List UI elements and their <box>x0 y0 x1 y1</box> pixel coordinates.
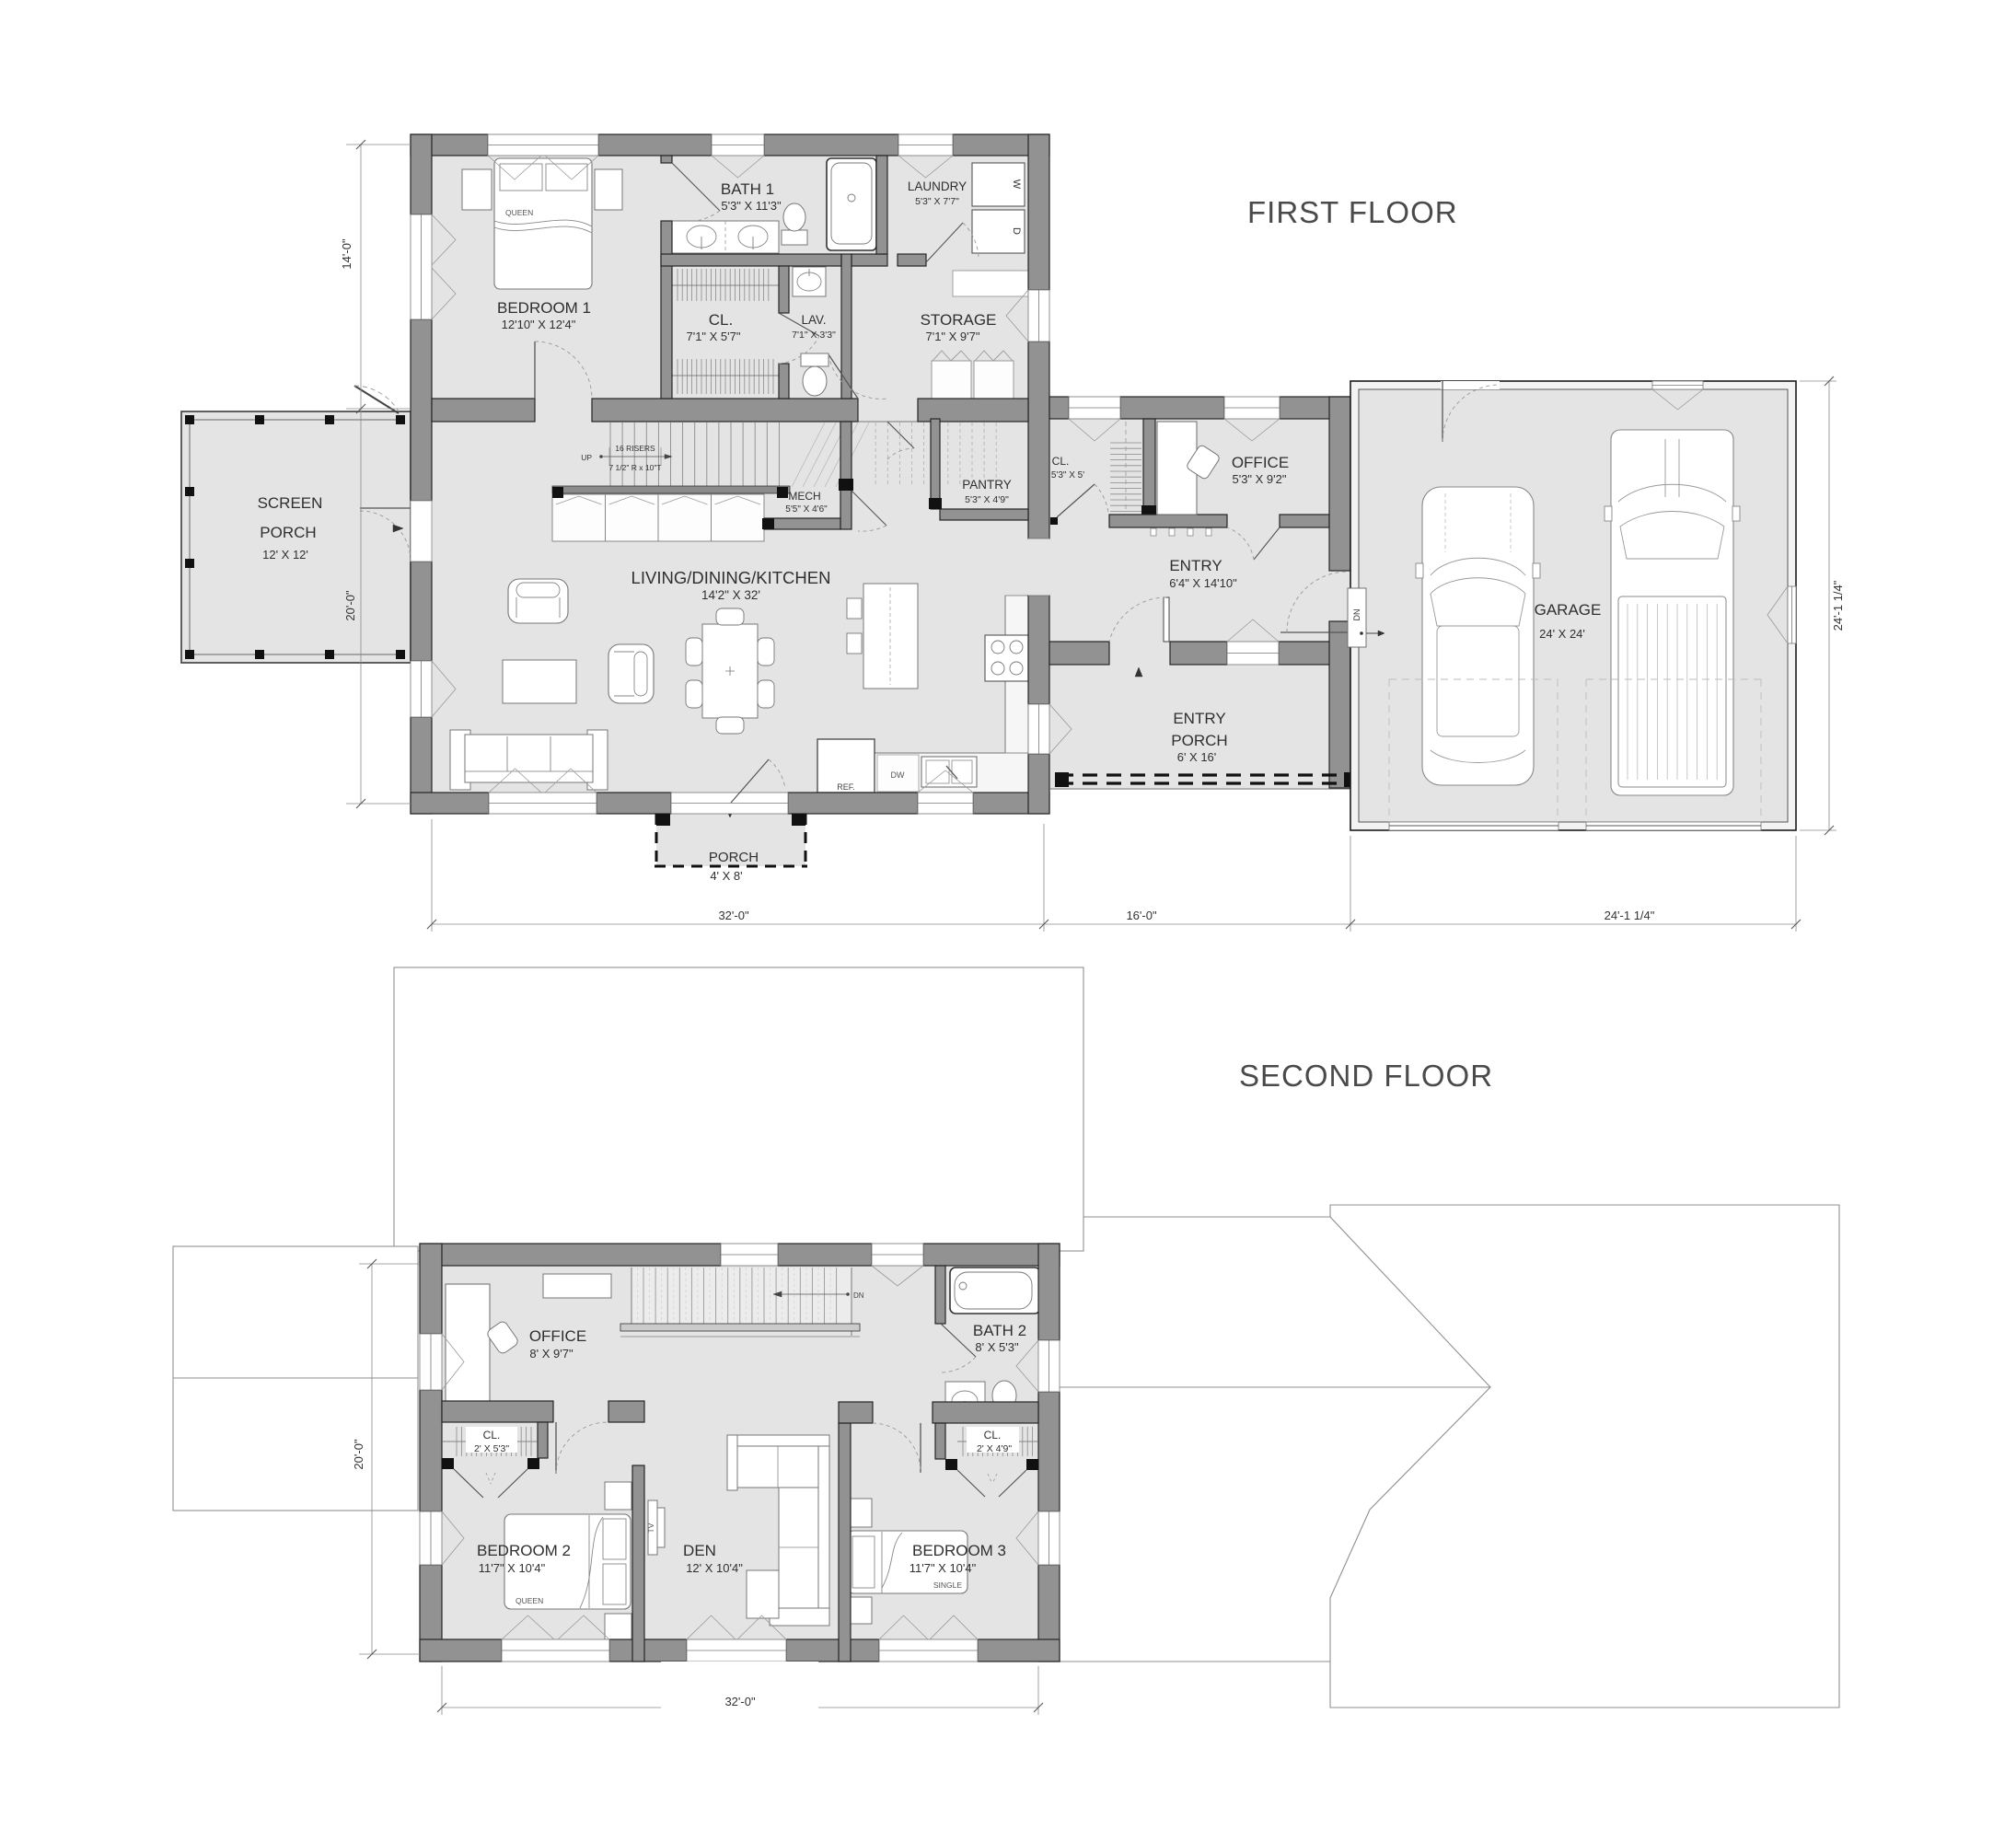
svg-text:SINGLE: SINGLE <box>933 1580 963 1590</box>
svg-text:2' X 4'9": 2' X 4'9" <box>977 1443 1012 1454</box>
svg-text:5'3" X 7'7": 5'3" X 7'7" <box>915 196 959 207</box>
svg-text:PORCH: PORCH <box>709 850 759 865</box>
svg-text:12'10" X 12'4": 12'10" X 12'4" <box>502 318 576 331</box>
svg-text:TV: TV <box>646 1523 655 1533</box>
svg-text:REF.: REF. <box>837 782 855 792</box>
svg-text:5'3" X 11'3": 5'3" X 11'3" <box>721 199 782 213</box>
svg-text:7'1" X 9'7": 7'1" X 9'7" <box>925 330 979 343</box>
svg-text:GARAGE: GARAGE <box>1535 601 1602 619</box>
svg-text:OFFICE: OFFICE <box>1232 454 1289 471</box>
svg-text:4' X 8': 4' X 8' <box>710 869 742 883</box>
svg-text:QUEEN: QUEEN <box>516 1596 543 1605</box>
svg-text:12' X 12': 12' X 12' <box>262 548 308 562</box>
svg-text:ENTRY: ENTRY <box>1173 710 1225 727</box>
svg-text:QUEEN: QUEEN <box>505 208 533 217</box>
svg-text:5'3" X 5': 5'3" X 5' <box>1051 470 1084 481</box>
svg-text:DN: DN <box>853 1291 864 1300</box>
svg-text:11'7" X 10'4": 11'7" X 10'4" <box>479 1561 546 1575</box>
svg-text:DN: DN <box>1352 609 1361 621</box>
svg-text:32'-0": 32'-0" <box>724 1695 756 1708</box>
svg-text:5'3" X 4'9": 5'3" X 4'9" <box>965 494 1009 505</box>
svg-text:OFFICE: OFFICE <box>529 1327 586 1345</box>
svg-text:2' X 5'3": 2' X 5'3" <box>474 1443 509 1454</box>
svg-text:MECH: MECH <box>788 490 820 503</box>
svg-text:SCREEN: SCREEN <box>258 494 323 512</box>
svg-text:6' X 16': 6' X 16' <box>1177 750 1217 764</box>
svg-text:ENTRY: ENTRY <box>1169 557 1222 574</box>
svg-text:BATH 2: BATH 2 <box>973 1322 1026 1339</box>
svg-text:14'2" X 32': 14'2" X 32' <box>701 588 760 602</box>
svg-text:24' X 24': 24' X 24' <box>1539 627 1585 641</box>
svg-text:LAV.: LAV. <box>801 313 826 327</box>
svg-text:CL.: CL. <box>1052 455 1070 468</box>
svg-text:BATH 1: BATH 1 <box>721 180 774 198</box>
svg-text:LIVING/DINING/KITCHEN: LIVING/DINING/KITCHEN <box>631 568 831 587</box>
svg-text:5'3" X 9'2": 5'3" X 9'2" <box>1232 472 1286 486</box>
svg-text:7'1" X 3'3": 7'1" X 3'3" <box>792 330 836 341</box>
svg-text:20'-0": 20'-0" <box>343 590 357 621</box>
svg-text:DW: DW <box>891 770 905 780</box>
svg-text:STORAGE: STORAGE <box>921 311 997 329</box>
svg-text:PORCH: PORCH <box>1171 732 1227 749</box>
svg-text:7 1/2" R x 10"T: 7 1/2" R x 10"T <box>608 463 661 472</box>
svg-text:BEDROOM 1: BEDROOM 1 <box>497 299 591 317</box>
svg-text:16 RISERS: 16 RISERS <box>615 444 655 453</box>
svg-text:SECOND FLOOR: SECOND FLOOR <box>1239 1059 1493 1093</box>
svg-text:6'4" X 14'10": 6'4" X 14'10" <box>1169 576 1237 590</box>
svg-text:8' X 5'3": 8' X 5'3" <box>975 1340 1019 1354</box>
svg-text:W: W <box>1011 179 1022 190</box>
svg-text:BEDROOM 3: BEDROOM 3 <box>912 1542 1006 1559</box>
svg-text:CL.: CL. <box>709 311 733 329</box>
svg-text:7'1" X 5'7": 7'1" X 5'7" <box>686 330 740 343</box>
svg-text:20'-0": 20'-0" <box>352 1439 365 1470</box>
svg-text:PORCH: PORCH <box>260 524 316 541</box>
svg-text:14'-0": 14'-0" <box>340 238 353 270</box>
svg-text:D: D <box>1011 227 1022 235</box>
svg-text:12' X 10'4": 12' X 10'4" <box>686 1561 743 1575</box>
svg-text:FIRST FLOOR: FIRST FLOOR <box>1247 195 1458 229</box>
svg-text:24'-1 1/4": 24'-1 1/4" <box>1605 909 1655 922</box>
svg-text:16'-0": 16'-0" <box>1126 909 1157 922</box>
svg-text:BEDROOM 2: BEDROOM 2 <box>477 1542 571 1559</box>
svg-text:LAUNDRY: LAUNDRY <box>908 179 967 193</box>
svg-text:CL.: CL. <box>984 1429 1002 1442</box>
svg-text:5'5" X 4'6": 5'5" X 4'6" <box>785 504 828 515</box>
svg-text:DEN: DEN <box>683 1542 716 1559</box>
svg-text:11'7" X 10'4": 11'7" X 10'4" <box>910 1561 977 1575</box>
svg-text:8' X 9'7": 8' X 9'7" <box>529 1347 574 1360</box>
svg-text:24'-1 1/4": 24'-1 1/4" <box>1831 580 1845 631</box>
svg-text:UP: UP <box>581 453 592 462</box>
svg-text:32'-0": 32'-0" <box>718 909 749 922</box>
svg-text:PANTRY: PANTRY <box>962 478 1012 492</box>
svg-text:CL.: CL. <box>483 1429 501 1442</box>
